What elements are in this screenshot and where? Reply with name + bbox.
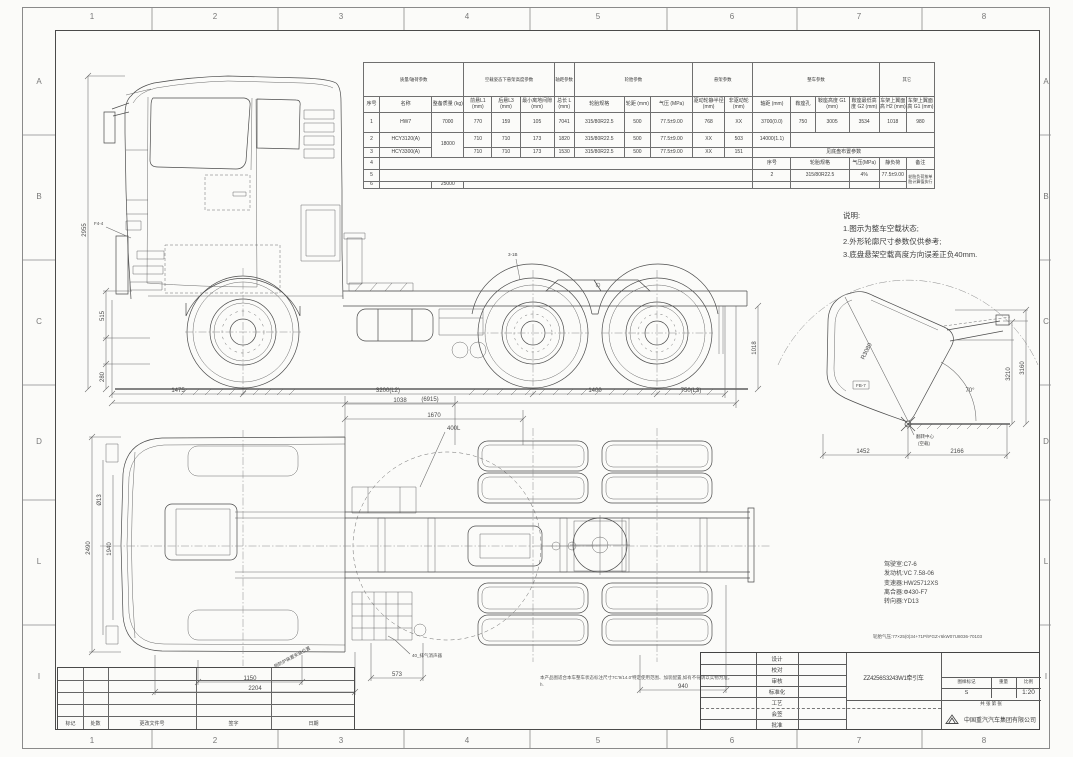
table-cell: 315/80R22.5 (791, 170, 849, 182)
rev-col-sign: 签字 (196, 720, 271, 727)
intake-stack (344, 233, 365, 284)
label-f4: F4-4 (94, 221, 104, 226)
table-cell: 151 (725, 148, 753, 158)
role-countersign: 会签 (756, 710, 798, 718)
table-cell: 500 (624, 113, 650, 133)
table-cell: 质量/轴荷参数 (364, 63, 464, 97)
dim-cab-to-gearbox: 1670 (427, 413, 441, 419)
table-cell (791, 133, 935, 148)
sheet-count: 共 张 第 张 (941, 701, 1041, 707)
rev-col-mark: 标记 (58, 720, 83, 727)
table-cell: 6 (364, 182, 380, 189)
table-cell: XX (725, 113, 753, 133)
table-cell: 鞍座孔 (791, 97, 815, 113)
table-row: 2HCY3120(A)180007107101731820315/80R22.5… (364, 133, 935, 148)
table-cell: 77.5±9.00 (879, 170, 906, 182)
table-cell: 5 (364, 170, 380, 182)
table-row: 序号名称整备质量 (kg)前悬L1 (mm)后悬L3 (mm)最小离地间隙 (m… (364, 97, 935, 113)
table-cell (849, 182, 879, 189)
tilted-cab-outline (827, 292, 953, 422)
table-cell: 前悬L1 (mm) (464, 97, 492, 113)
side-guard-label: 侧防护装置安装位置 (273, 644, 312, 669)
mudflap (719, 306, 723, 354)
weight-label: 重量 (991, 679, 1016, 685)
air-tank (452, 342, 468, 358)
table-cell: HCY3300(A) (380, 148, 432, 158)
table-cell: 77.5±9.00 (650, 113, 692, 133)
table-cell: 轴距 (mm) (753, 97, 791, 113)
rear-crossmember (748, 508, 754, 582)
table-cell: 25000 (432, 182, 464, 189)
spec-clutch: 离合器:Φ430-F7 (884, 589, 938, 598)
table-cell (380, 182, 432, 189)
table-cell: 14000(1.1) (753, 133, 791, 148)
spec-cab: 驾驶室:C7-6 (884, 561, 938, 570)
table-cell: 710 (492, 148, 520, 158)
table-cell: 7041 (554, 113, 574, 133)
dim-rear-overhang: 750(L3) (681, 388, 702, 394)
table-cell (464, 182, 753, 189)
table-cell (879, 182, 906, 189)
tilt-radius: R3080 (860, 342, 874, 361)
table-cell: 2 (753, 170, 791, 182)
table-cell: 77.5±9.00 (650, 148, 692, 158)
table-cell: 159 (492, 113, 520, 133)
table-row: 625000 (364, 182, 935, 189)
rev-col-date: 日期 (271, 720, 356, 727)
tilt-height-2: 3160 (1020, 361, 1026, 375)
table-cell: 名称 (380, 97, 432, 113)
table-cell: XX (693, 148, 725, 158)
role-process: 工艺 (756, 699, 798, 707)
label-3b: 3-1B (508, 252, 518, 257)
rev-col-docno: 更改文件号 (108, 720, 196, 727)
tire-spec-line: 轮胎气压:77×25(0)34+71P/9*GZ-r6kW07U8036-701… (873, 634, 1063, 640)
table-cell: HW7 (380, 113, 432, 133)
crossmembers (378, 518, 707, 572)
dim-hole-dia: Ø13 (97, 494, 103, 506)
fifth-wheel-side (546, 280, 650, 291)
note-1: 1.图示为整车空载状态; (843, 222, 1058, 235)
table-cell: 77.5±9.00 (650, 133, 692, 148)
frame-rails-plan (345, 512, 750, 578)
company-name: 中国重汽汽车集团有限公司 (959, 715, 1041, 724)
table-cell: 空载姿态下悬架高度参数 (464, 63, 554, 97)
drawing-title: ZZ4256S3243W1牵引车 (847, 673, 940, 682)
fuel-tank-side (357, 309, 433, 341)
table-cell: 序号 (364, 97, 380, 113)
table-cell: XX (693, 133, 725, 148)
spec-steering: 转向器:YD13 (884, 598, 938, 607)
table-cell: HCY3120(A) (380, 133, 432, 148)
table-cell: 轴距参数 (554, 63, 574, 97)
table-cell: 气压 (MPa) (650, 97, 692, 113)
scale-value: 1:20 (1016, 689, 1041, 696)
table-cell (753, 182, 791, 189)
table-cell: 315/80R22.5 (574, 133, 624, 148)
table-cell: 鞍座高度 G1 (mm) (815, 97, 849, 113)
cab-quarter-window (257, 99, 300, 149)
table-cell: 500 (624, 133, 650, 148)
table-cell: 3534 (849, 113, 879, 133)
tilt-height-1: 3210 (1006, 367, 1012, 381)
table-cell: 鞍座最低高度 G2 (mm) (849, 97, 879, 113)
air-tank (470, 342, 486, 358)
mark-value: S (942, 690, 991, 696)
note-3: 3.底盘悬架空载高度方向误差正负40mm. (843, 248, 1058, 261)
rev-col-count: 处数 (83, 720, 108, 727)
dim-frame-height: 515 (100, 310, 106, 321)
role-design: 设计 (756, 655, 798, 663)
parameter-table: 质量/轴荷参数空载姿态下悬架高度参数轴距参数轮胎参数悬架参数整车参数其它序号名称… (363, 62, 935, 189)
table-cell: 备注 (906, 158, 934, 170)
pivot-label: 翻转中心 (916, 433, 934, 440)
table-cell: 车架上翼面高 G1 (mm) (906, 97, 934, 113)
table-cell (791, 182, 849, 189)
cab-side-window (150, 98, 250, 169)
door-handle (233, 192, 246, 196)
drawing-sheet: 1 2 3 4 5 6 7 8 1 2 3 4 5 6 7 8 A B C D … (0, 0, 1073, 757)
table-cell: 710 (492, 133, 520, 148)
table-cell: 7000 (432, 113, 464, 133)
rear-fenders (472, 264, 718, 314)
table-row: 4序号轮胎规格气压(MPa)静负荷备注 (364, 158, 935, 170)
table-cell: 18000 (432, 133, 464, 158)
mark-label: 图样标记 (942, 679, 991, 685)
dim-cab-to-engine: 1038 (393, 398, 407, 404)
table-cell (380, 158, 753, 170)
cab-rear-vents (304, 110, 334, 158)
table-row: 52315/80R22.54%77.5±9.00轮胎负荷按单胎计算值执行 (364, 170, 935, 182)
windshield-plan (132, 452, 136, 638)
table-cell: 1820 (554, 133, 574, 148)
table-cell: 见底盘布置参数 (753, 148, 935, 158)
fb-label: FB-7 (856, 383, 866, 388)
tilt-angle: 70° (965, 388, 975, 394)
dim-cab-height: 2955 (82, 223, 88, 237)
table-row: 1HW770007701591057041315/80R22.550077.5±… (364, 113, 935, 133)
table-cell: 710 (464, 148, 492, 158)
table-cell: 500 (624, 148, 650, 158)
tilt-dim-right: 2166 (950, 449, 964, 455)
muffler-plan (352, 592, 412, 640)
scale-label: 比例 (1016, 679, 1041, 685)
role-standard: 标准化 (756, 688, 798, 696)
fifth-wheel-plan (570, 515, 630, 575)
table-cell: 105 (520, 113, 554, 133)
notes-title: 说明: (843, 209, 1058, 222)
table-cell: 173 (520, 148, 554, 158)
table-cell: 序号 (753, 158, 791, 170)
spec-gearbox: 变速器:HW25712XS (884, 580, 938, 589)
frame-rail (343, 291, 747, 306)
company-logo (945, 714, 959, 725)
notes-block: 说明: 1.图示为整车空载状态; 2.外形轮廓尺寸参数仅供参考; 3.底盘悬架空… (843, 209, 1058, 262)
dim-wheelbase-1: 3200(L2) (376, 388, 400, 394)
table-cell: 轮胎参数 (574, 63, 692, 97)
table-cell: 770 (464, 113, 492, 133)
title-block: 设计 校对 审核 标准化 工艺 会签 批准 ZZ4256S3243W1牵引车 图… (700, 652, 1040, 730)
dim-wheelbase-2: 1400 (588, 388, 602, 394)
revision-table: 标记 处数 更改文件号 签字 日期 (57, 667, 355, 730)
cab-tilt-view (778, 280, 1038, 431)
table-cell: 轮胎负荷按单胎计算值执行 (906, 170, 934, 189)
table-cell: 768 (693, 113, 725, 133)
truck-top-view (100, 428, 770, 666)
table-cell: 315/80R22.5 (574, 148, 624, 158)
role-review: 审核 (756, 677, 798, 685)
table-cell: 315/80R22.5 (574, 113, 624, 133)
table-cell: 2 (364, 133, 380, 148)
dim-inner-width: 1940 (107, 542, 113, 556)
dim-overall-length: (6915) (421, 397, 438, 403)
pivot-sublabel: (空载) (918, 440, 930, 447)
table-cell: 气压(MPa) (849, 158, 879, 170)
muffler-label: 40_排气消声器 (412, 652, 443, 659)
table-cell: 驱动轮静半径 (mm) (693, 97, 725, 113)
table-cell: 3700(0.0) (753, 113, 791, 133)
front-bumper (116, 236, 128, 294)
cab-rear-box (301, 205, 340, 261)
table-cell: 710 (464, 133, 492, 148)
table-cell: 3005 (815, 113, 849, 133)
table-row: 质量/轴荷参数空载姿态下悬架高度参数轴距参数轮胎参数悬架参数整车参数其它 (364, 63, 935, 97)
table-cell: 整车参数 (753, 63, 879, 97)
wheels-plan (188, 441, 712, 645)
table-cell: 1530 (554, 148, 574, 158)
table-cell: 悬架参数 (693, 63, 753, 97)
dim-step-height: 280 (100, 371, 106, 382)
table-cell: 后悬L3 (mm) (492, 97, 520, 113)
table-cell: 轮胎规格 (574, 97, 624, 113)
table-cell: 1 (364, 113, 380, 133)
role-check: 校对 (756, 666, 798, 674)
table-cell: 整备质量 (kg) (432, 97, 464, 113)
spec-engine: 发动机:VC 7.58-06 (884, 570, 938, 579)
dim-b3: 573 (392, 672, 403, 678)
table-cell: 非驱动轮 (mm) (725, 97, 753, 113)
dim-cab-width: 2490 (86, 541, 92, 555)
table-cell: 最小离地间隙 (mm) (520, 97, 554, 113)
table-cell: 3 (364, 148, 380, 158)
fuel-tank-capacity: 400L (447, 426, 461, 432)
note-2: 2.外形轮廓尺寸参数仅供参考; (843, 235, 1058, 248)
battery-box (439, 309, 483, 335)
table-cell (380, 170, 753, 182)
table-cell: 轮距 (mm) (624, 97, 650, 113)
cab-plan-outline (121, 437, 345, 652)
headlamp (126, 221, 141, 230)
table-cell: 静负荷 (879, 158, 906, 170)
dim-frame-top-height: 1018 (752, 341, 758, 355)
tilt-arc (778, 280, 1038, 365)
tilt-dim-left: 1452 (856, 449, 870, 455)
dim-front-overhang: 1475 (171, 388, 185, 394)
table-cell: 503 (725, 133, 753, 148)
table-cell: 750 (791, 113, 815, 133)
tilt-dimensions: R3080 70° 3210 3160 1452 2166 翻转中心 (空载) … (820, 307, 1029, 459)
table-cell: 4 (364, 158, 380, 170)
table-cell: 轮胎规格 (791, 158, 849, 170)
table-cell: 其它 (879, 63, 934, 97)
table-cell: 车架上翼面高 H2 (mm) (879, 97, 906, 113)
table-cell: 980 (906, 113, 934, 133)
fuel-tank-plan (352, 487, 416, 513)
spec-list: 驾驶室:C7-6 发动机:VC 7.58-06 变速器:HW25712XS 离合… (884, 561, 938, 607)
table-cell: 173 (520, 133, 554, 148)
table-cell: 总长 L (mm) (554, 97, 574, 113)
table-cell: 1018 (879, 113, 906, 133)
role-approve: 批准 (756, 721, 798, 729)
table-cell: 4% (849, 170, 879, 182)
